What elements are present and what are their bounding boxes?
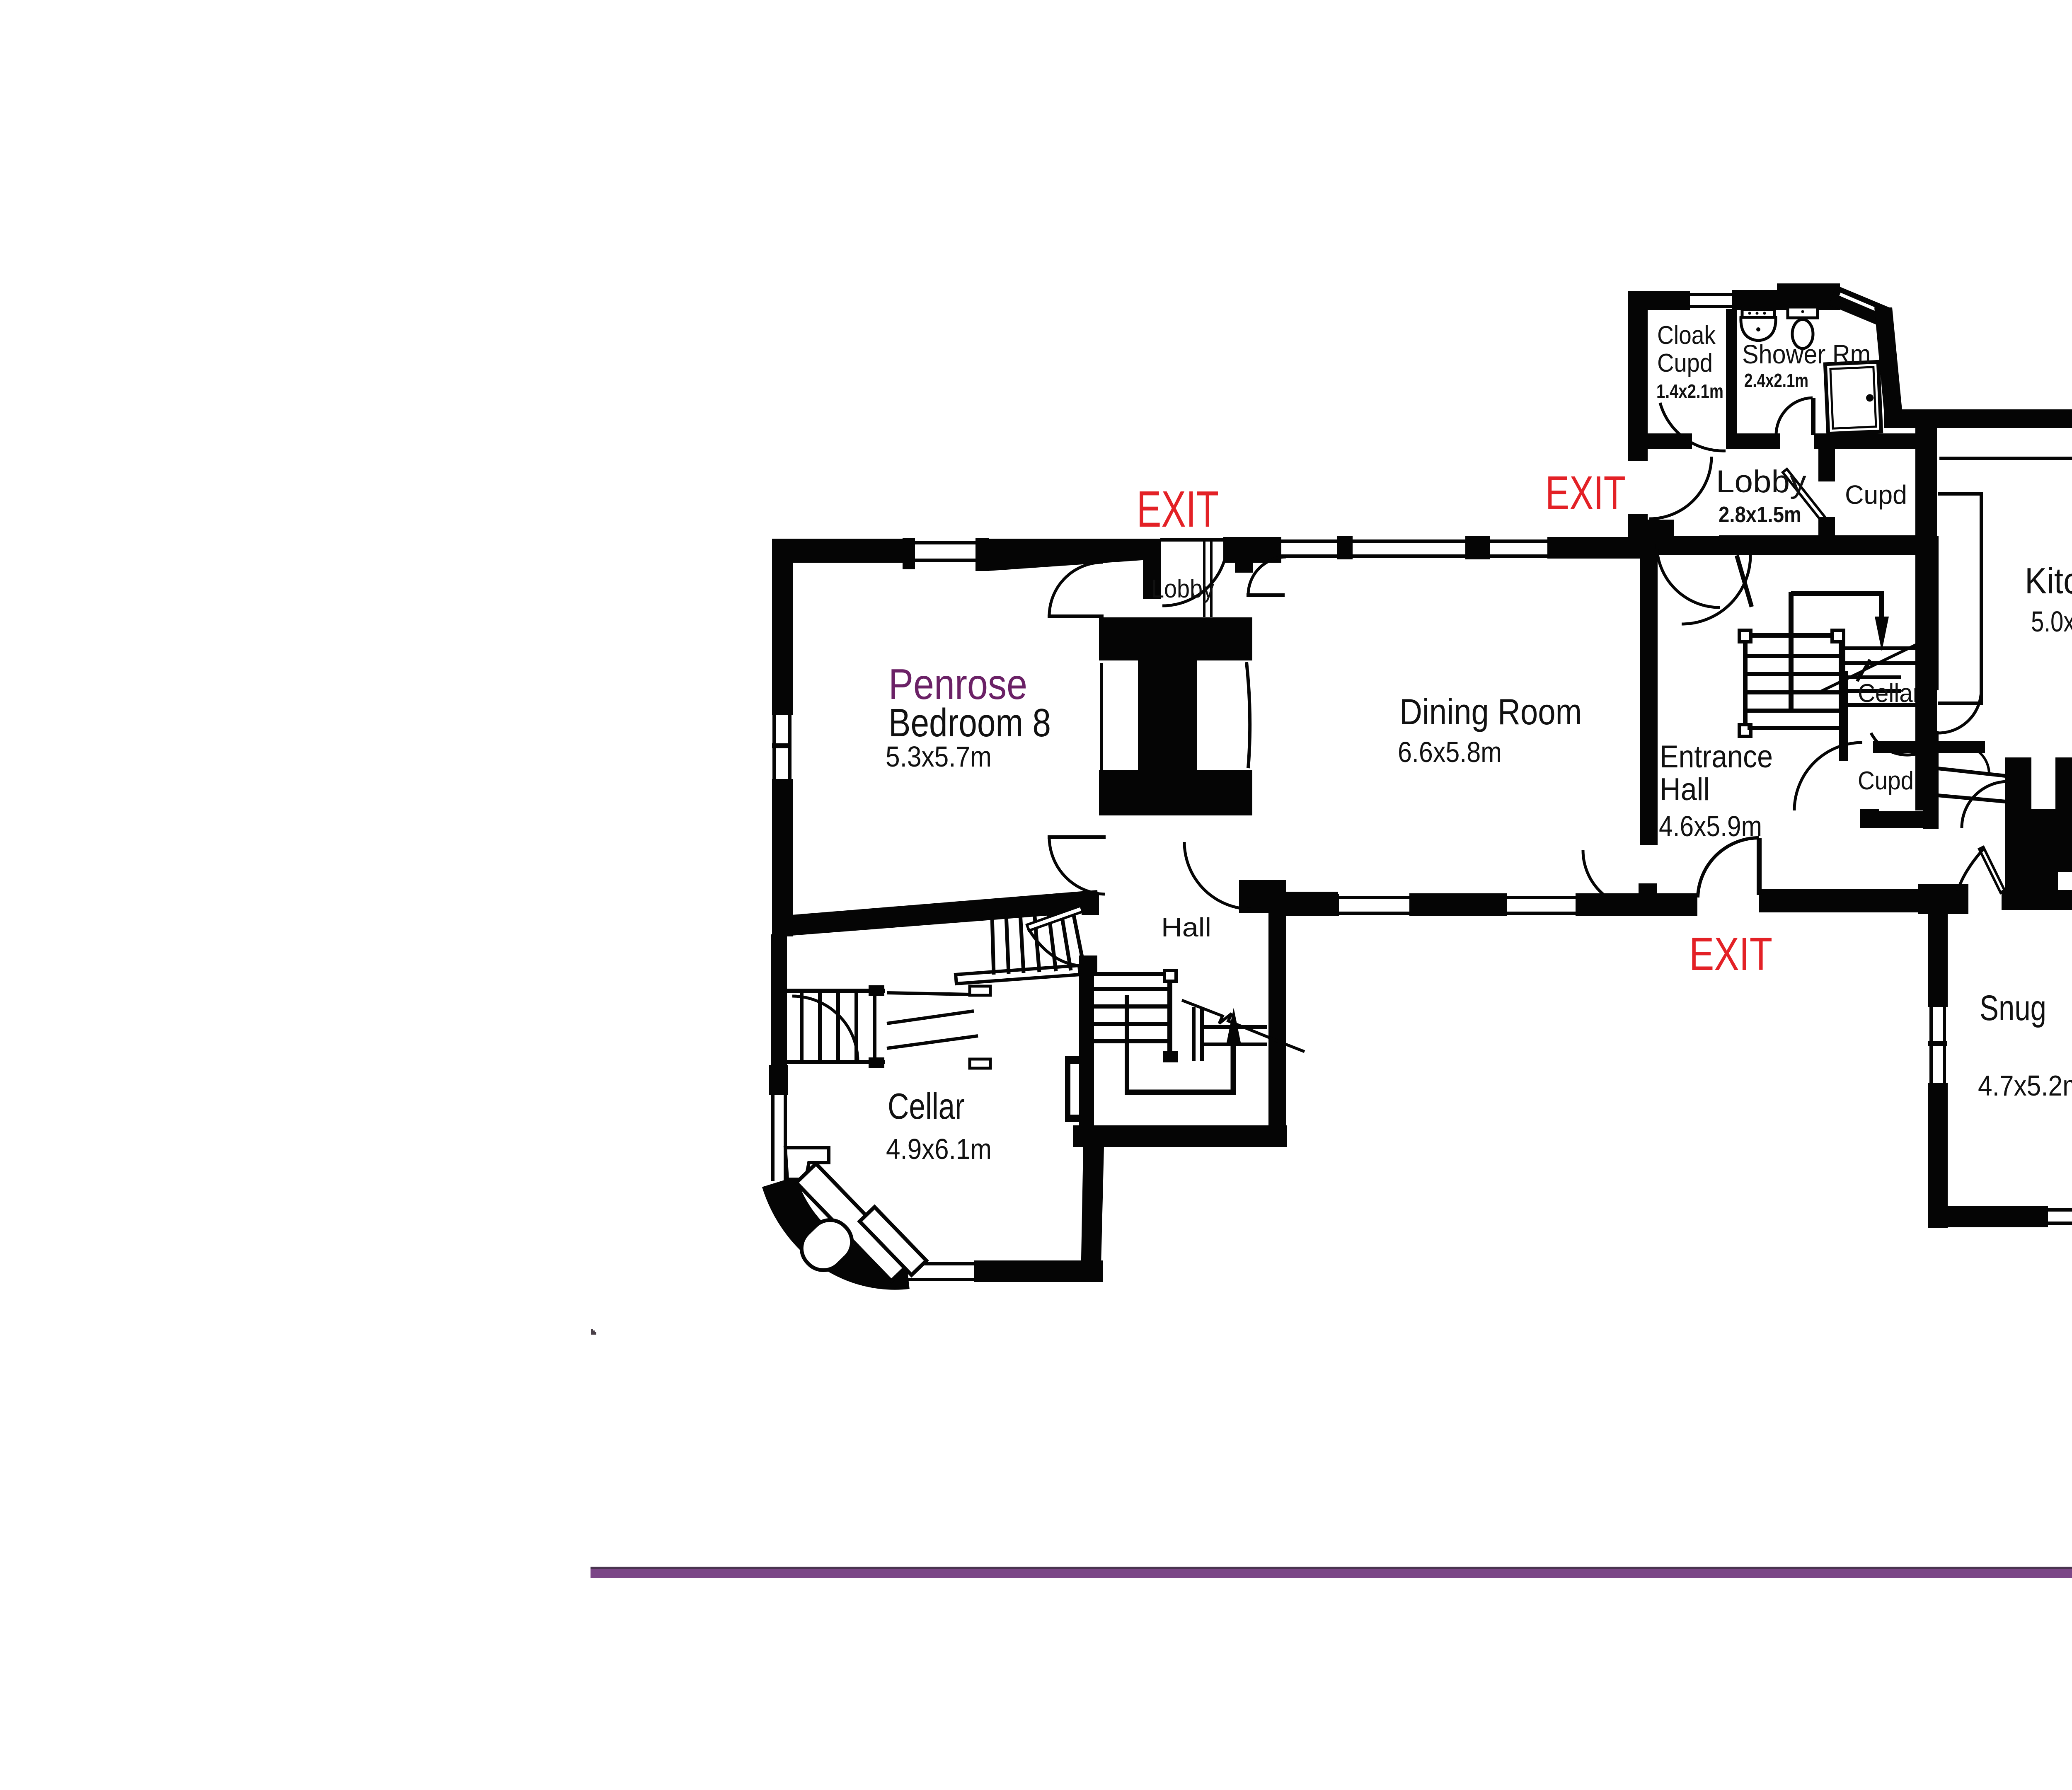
svg-text:Shower Rm: Shower Rm <box>1742 339 1871 369</box>
svg-text:EXIT: EXIT <box>1137 481 1219 538</box>
svg-text:Cellar: Cellar <box>1858 679 1921 708</box>
svg-text:EXIT: EXIT <box>1545 467 1626 520</box>
svg-text:Kitchen: Kitchen <box>2025 560 2072 601</box>
svg-text:Snug: Snug <box>1980 988 2046 1028</box>
svg-text:Dining Room: Dining Room <box>1399 691 1582 732</box>
svg-text:Lobby: Lobby <box>1716 464 1806 499</box>
svg-text:4.6x5.9m: 4.6x5.9m <box>1659 810 1762 842</box>
svg-text:6.6x5.8m: 6.6x5.8m <box>1398 736 1502 768</box>
svg-text:EXIT: EXIT <box>1689 928 1772 980</box>
svg-text:Hall: Hall <box>1161 912 1211 942</box>
svg-text:Cupd: Cupd <box>1657 349 1713 377</box>
svg-text:1.4x2.1m: 1.4x2.1m <box>1656 380 1723 402</box>
svg-text:Hall: Hall <box>1660 772 1710 807</box>
svg-text:4.7x5.2m: 4.7x5.2m <box>1978 1069 2072 1102</box>
svg-text:5.3x5.7m: 5.3x5.7m <box>886 740 992 773</box>
svg-text:Lobby: Lobby <box>1151 575 1214 603</box>
svg-text:Bedroom 8: Bedroom 8 <box>888 701 1051 745</box>
svg-text:Cupd: Cupd <box>1845 480 1907 510</box>
svg-text:4.9x6.1m: 4.9x6.1m <box>886 1133 992 1165</box>
svg-text:Cupd: Cupd <box>1858 767 1914 795</box>
svg-text:Cellar: Cellar <box>888 1086 965 1127</box>
svg-text:Entrance: Entrance <box>1660 739 1773 774</box>
svg-text:2.8x1.5m: 2.8x1.5m <box>1719 502 1801 527</box>
svg-text:Cloak: Cloak <box>1657 321 1716 350</box>
svg-text:5.0x5.6m: 5.0x5.6m <box>2031 605 2072 638</box>
svg-text:2.4x2.1m: 2.4x2.1m <box>1744 370 1808 391</box>
